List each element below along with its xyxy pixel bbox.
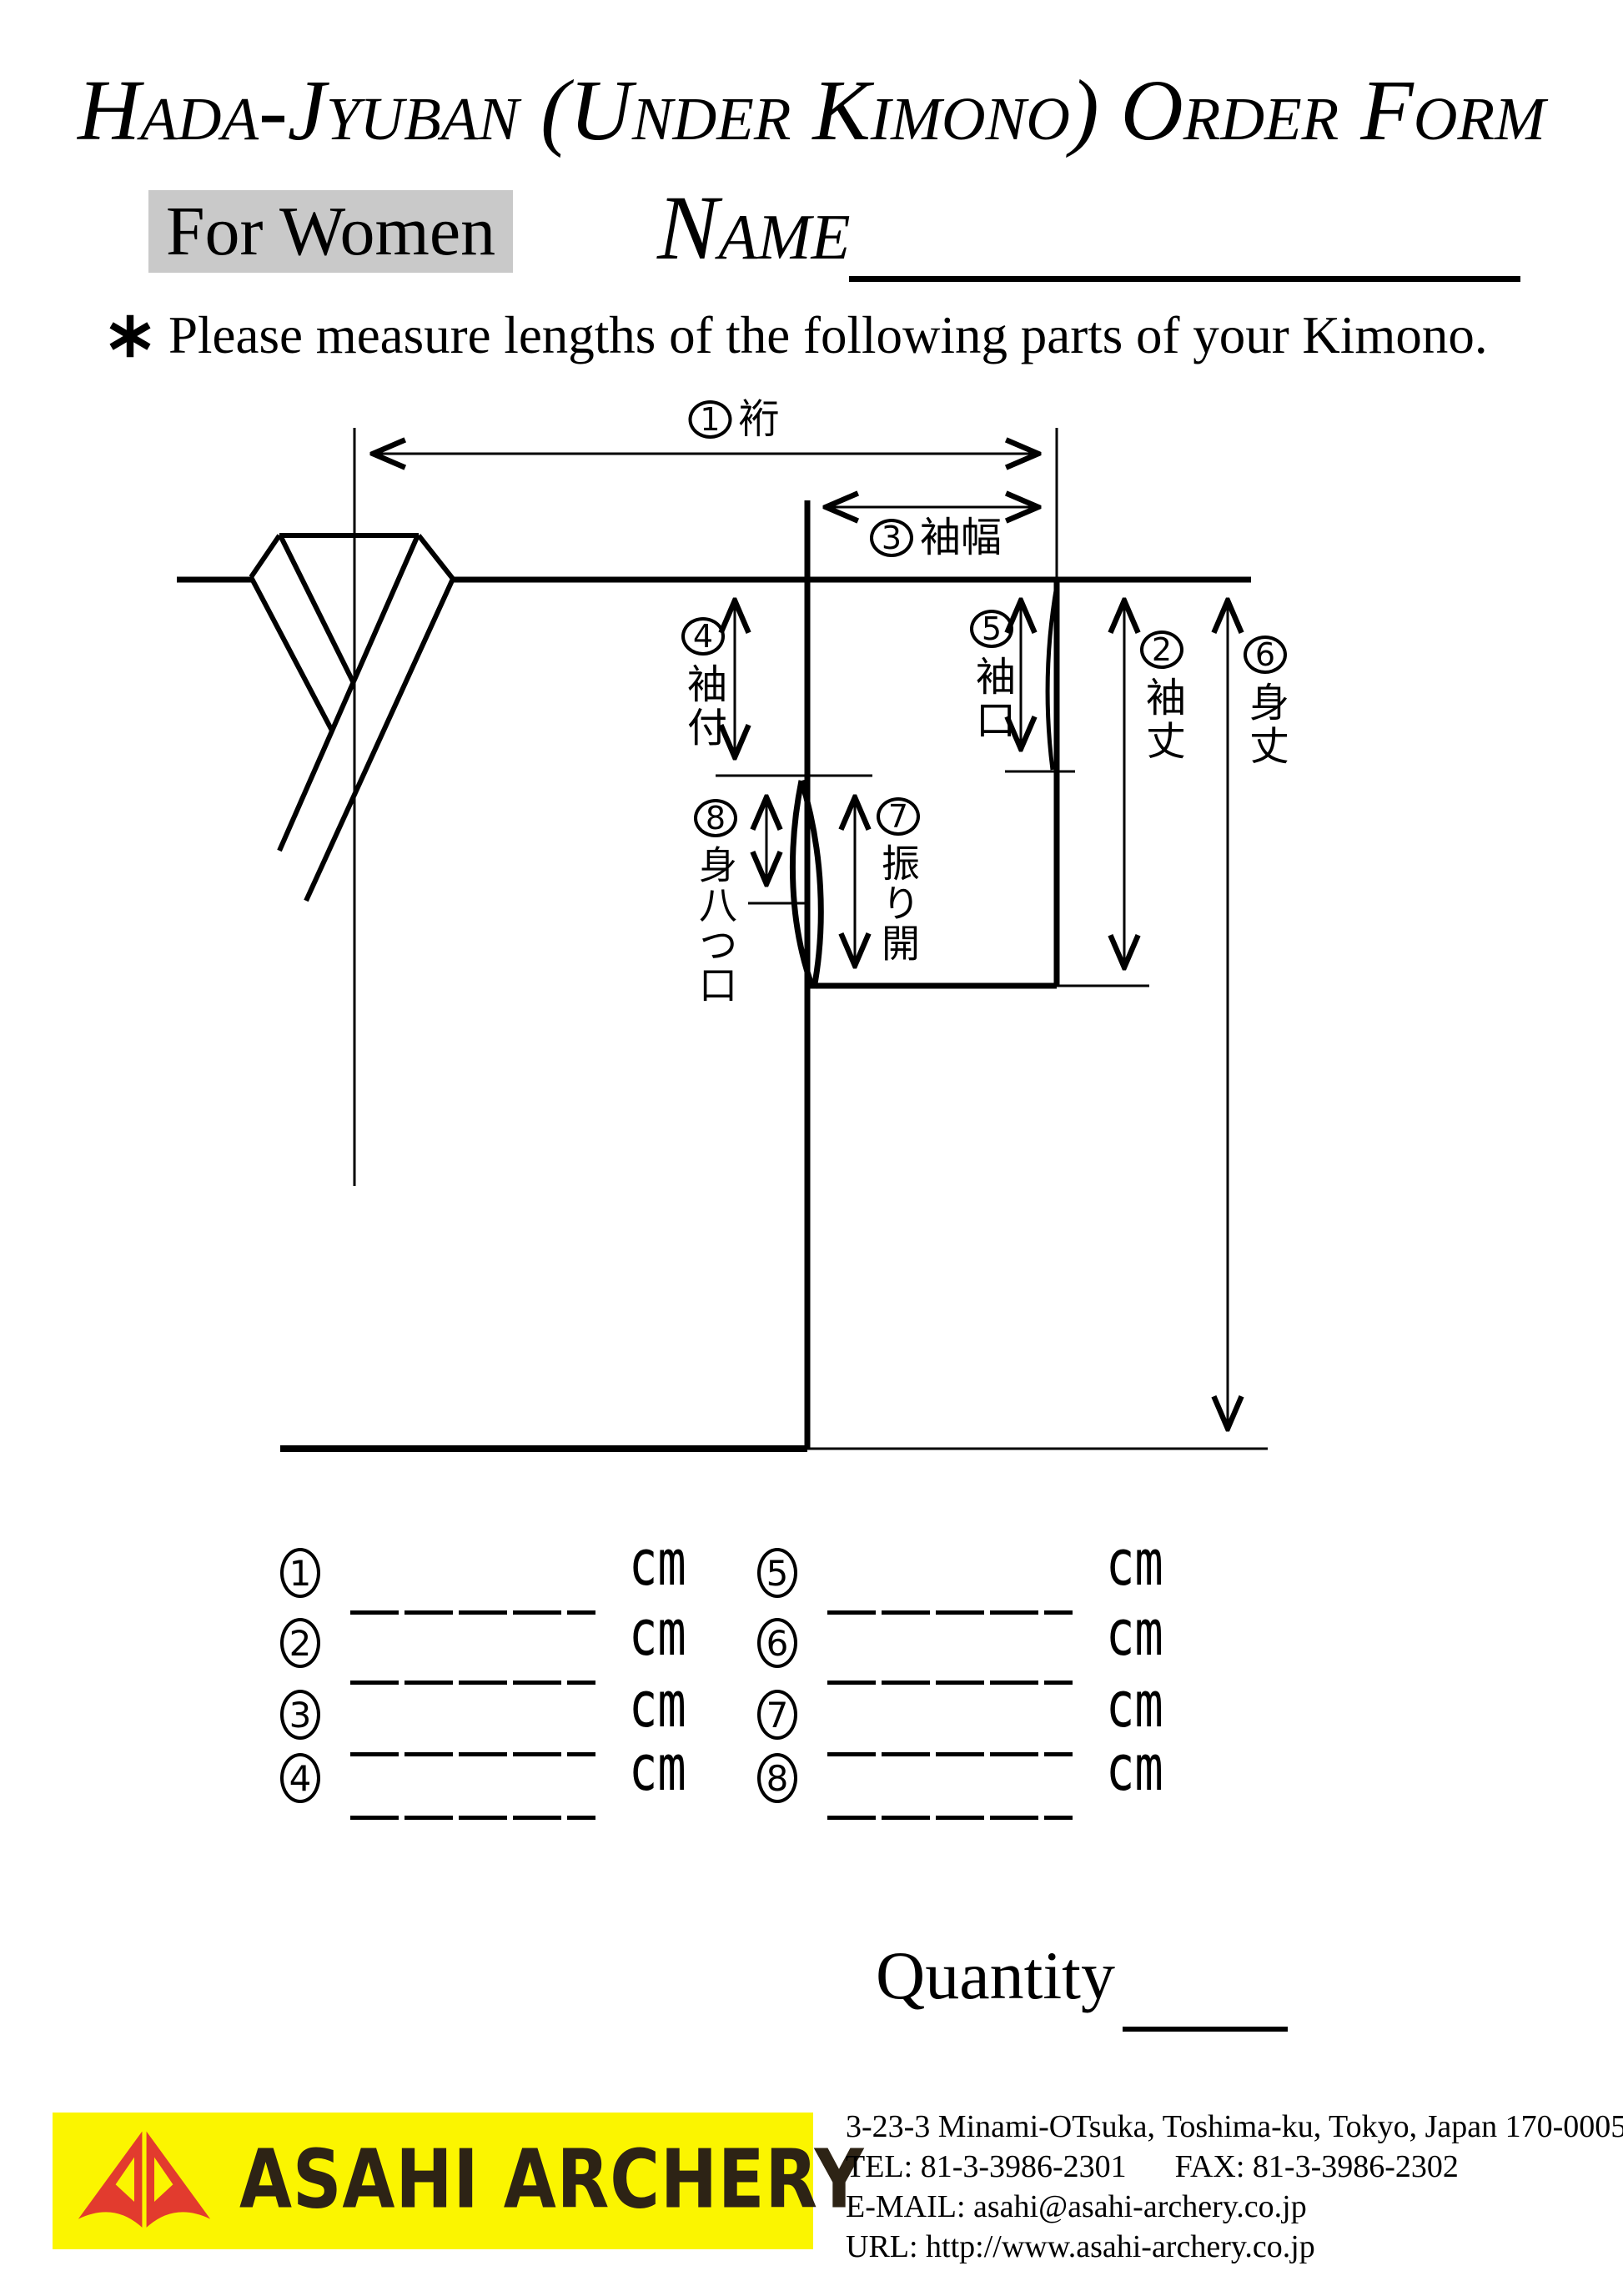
measurement-row-4: 4 cm: [280, 1750, 781, 1821]
collar-diag-left: [251, 535, 279, 577]
label-miyatsuguchi-text: 身八つ口: [696, 845, 735, 1005]
measurement-row-8: 8 cm: [757, 1750, 1258, 1821]
row-4-number: 4: [280, 1753, 320, 1803]
label-miyatsuguchi: 8 身八つ口: [694, 799, 737, 1005]
row-7-unit: cm: [1106, 1673, 1163, 1736]
quantity-label: Quantity: [876, 1942, 1115, 2010]
circled-2: 2: [1140, 631, 1183, 669]
measurement-row-3: 3 cm: [280, 1686, 781, 1758]
label-yuki: 1 裄: [688, 399, 779, 440]
order-form-page: Hada-Jyuban (Under Kimono) Order Form Fo…: [0, 0, 1623, 2296]
quantity-fill-line: [1123, 2027, 1288, 2032]
row-5-number: 5: [757, 1548, 797, 1598]
row-6-unit: cm: [1106, 1601, 1163, 1665]
collar-left-band-inner: [281, 537, 354, 683]
row-4-unit: cm: [629, 1736, 686, 1800]
row-2-unit: cm: [629, 1601, 686, 1665]
row-7-number: 7: [757, 1690, 797, 1740]
label-yuki-text: 裄: [738, 399, 779, 440]
kimono-diagram: [0, 0, 1623, 2296]
label-sodetsuke: 4 袖付: [681, 617, 725, 750]
row-4-fill-line: [350, 1816, 595, 1820]
row-8-number: 8: [757, 1753, 797, 1803]
collar-lines: [251, 535, 453, 901]
footer-tel: TEL: 81-3-3986-2301: [846, 2149, 1127, 2184]
label-sodeguchi: 5 袖口: [970, 610, 1013, 742]
circled-7: 7: [877, 797, 920, 836]
label-mitake: 6 身丈: [1244, 636, 1287, 768]
asahi-arrow-icon: [73, 2119, 216, 2243]
footer-fax: FAX: 81-3-3986-2302: [1175, 2149, 1459, 2184]
circled-5: 5: [970, 610, 1013, 648]
measurement-row-7: 7 cm: [757, 1686, 1258, 1758]
circled-1: 1: [688, 400, 731, 439]
footer-url: URL: http://www.asahi-archery.co.jp: [846, 2227, 1623, 2267]
circled-3: 3: [870, 519, 913, 557]
footer-tel-fax: TEL: 81-3-3986-2301FAX: 81-3-3986-2302: [846, 2147, 1623, 2187]
label-mitake-text: 身丈: [1245, 681, 1285, 768]
row-2-number: 2: [280, 1618, 320, 1668]
circled-4: 4: [681, 617, 725, 656]
footer-address-block: 3-23-3 Minami-OTsuka, Toshima-ku, Tokyo,…: [846, 2107, 1623, 2267]
row-3-unit: cm: [629, 1673, 686, 1736]
circled-8: 8: [694, 799, 737, 837]
asahi-archery-logo: ASAHI ARCHERY: [53, 2113, 813, 2249]
measurement-row-2: 2 cm: [280, 1615, 781, 1686]
label-sodeguchi-text: 袖口: [972, 656, 1012, 742]
row-2-fill-line: [350, 1681, 595, 1685]
measurement-row-6: 6 cm: [757, 1615, 1258, 1686]
label-sodetake-text: 袖丈: [1142, 676, 1182, 763]
row-6-number: 6: [757, 1618, 797, 1668]
circled-6: 6: [1244, 636, 1287, 674]
row-1-unit: cm: [629, 1531, 686, 1595]
label-sodehaba: 3 袖幅: [870, 517, 1002, 558]
label-sodetake: 2 袖丈: [1140, 631, 1183, 763]
row-1-number: 1: [280, 1548, 320, 1598]
footer-email: E-MAIL: asahi@asahi-archery.co.jp: [846, 2187, 1623, 2227]
label-sodehaba-text: 袖幅: [920, 517, 1002, 558]
row-6-fill-line: [827, 1681, 1073, 1685]
measurement-row-1: 1 cm: [280, 1545, 781, 1616]
collar-left-band-outer: [251, 577, 332, 731]
label-furiaki: 7 振り開: [877, 797, 920, 963]
measurement-row-5: 5 cm: [757, 1545, 1258, 1616]
row-3-number: 3: [280, 1690, 320, 1740]
row-8-unit: cm: [1106, 1736, 1163, 1800]
row-5-unit: cm: [1106, 1531, 1163, 1595]
label-furiaki-text: 振り開: [879, 843, 917, 963]
collar-diag-right: [419, 535, 453, 579]
logo-wordmark: ASAHI ARCHERY: [239, 2139, 864, 2220]
row-8-fill-line: [827, 1816, 1073, 1820]
footer-address: 3-23-3 Minami-OTsuka, Toshima-ku, Tokyo,…: [846, 2107, 1623, 2147]
label-sodetsuke-text: 袖付: [683, 663, 723, 750]
